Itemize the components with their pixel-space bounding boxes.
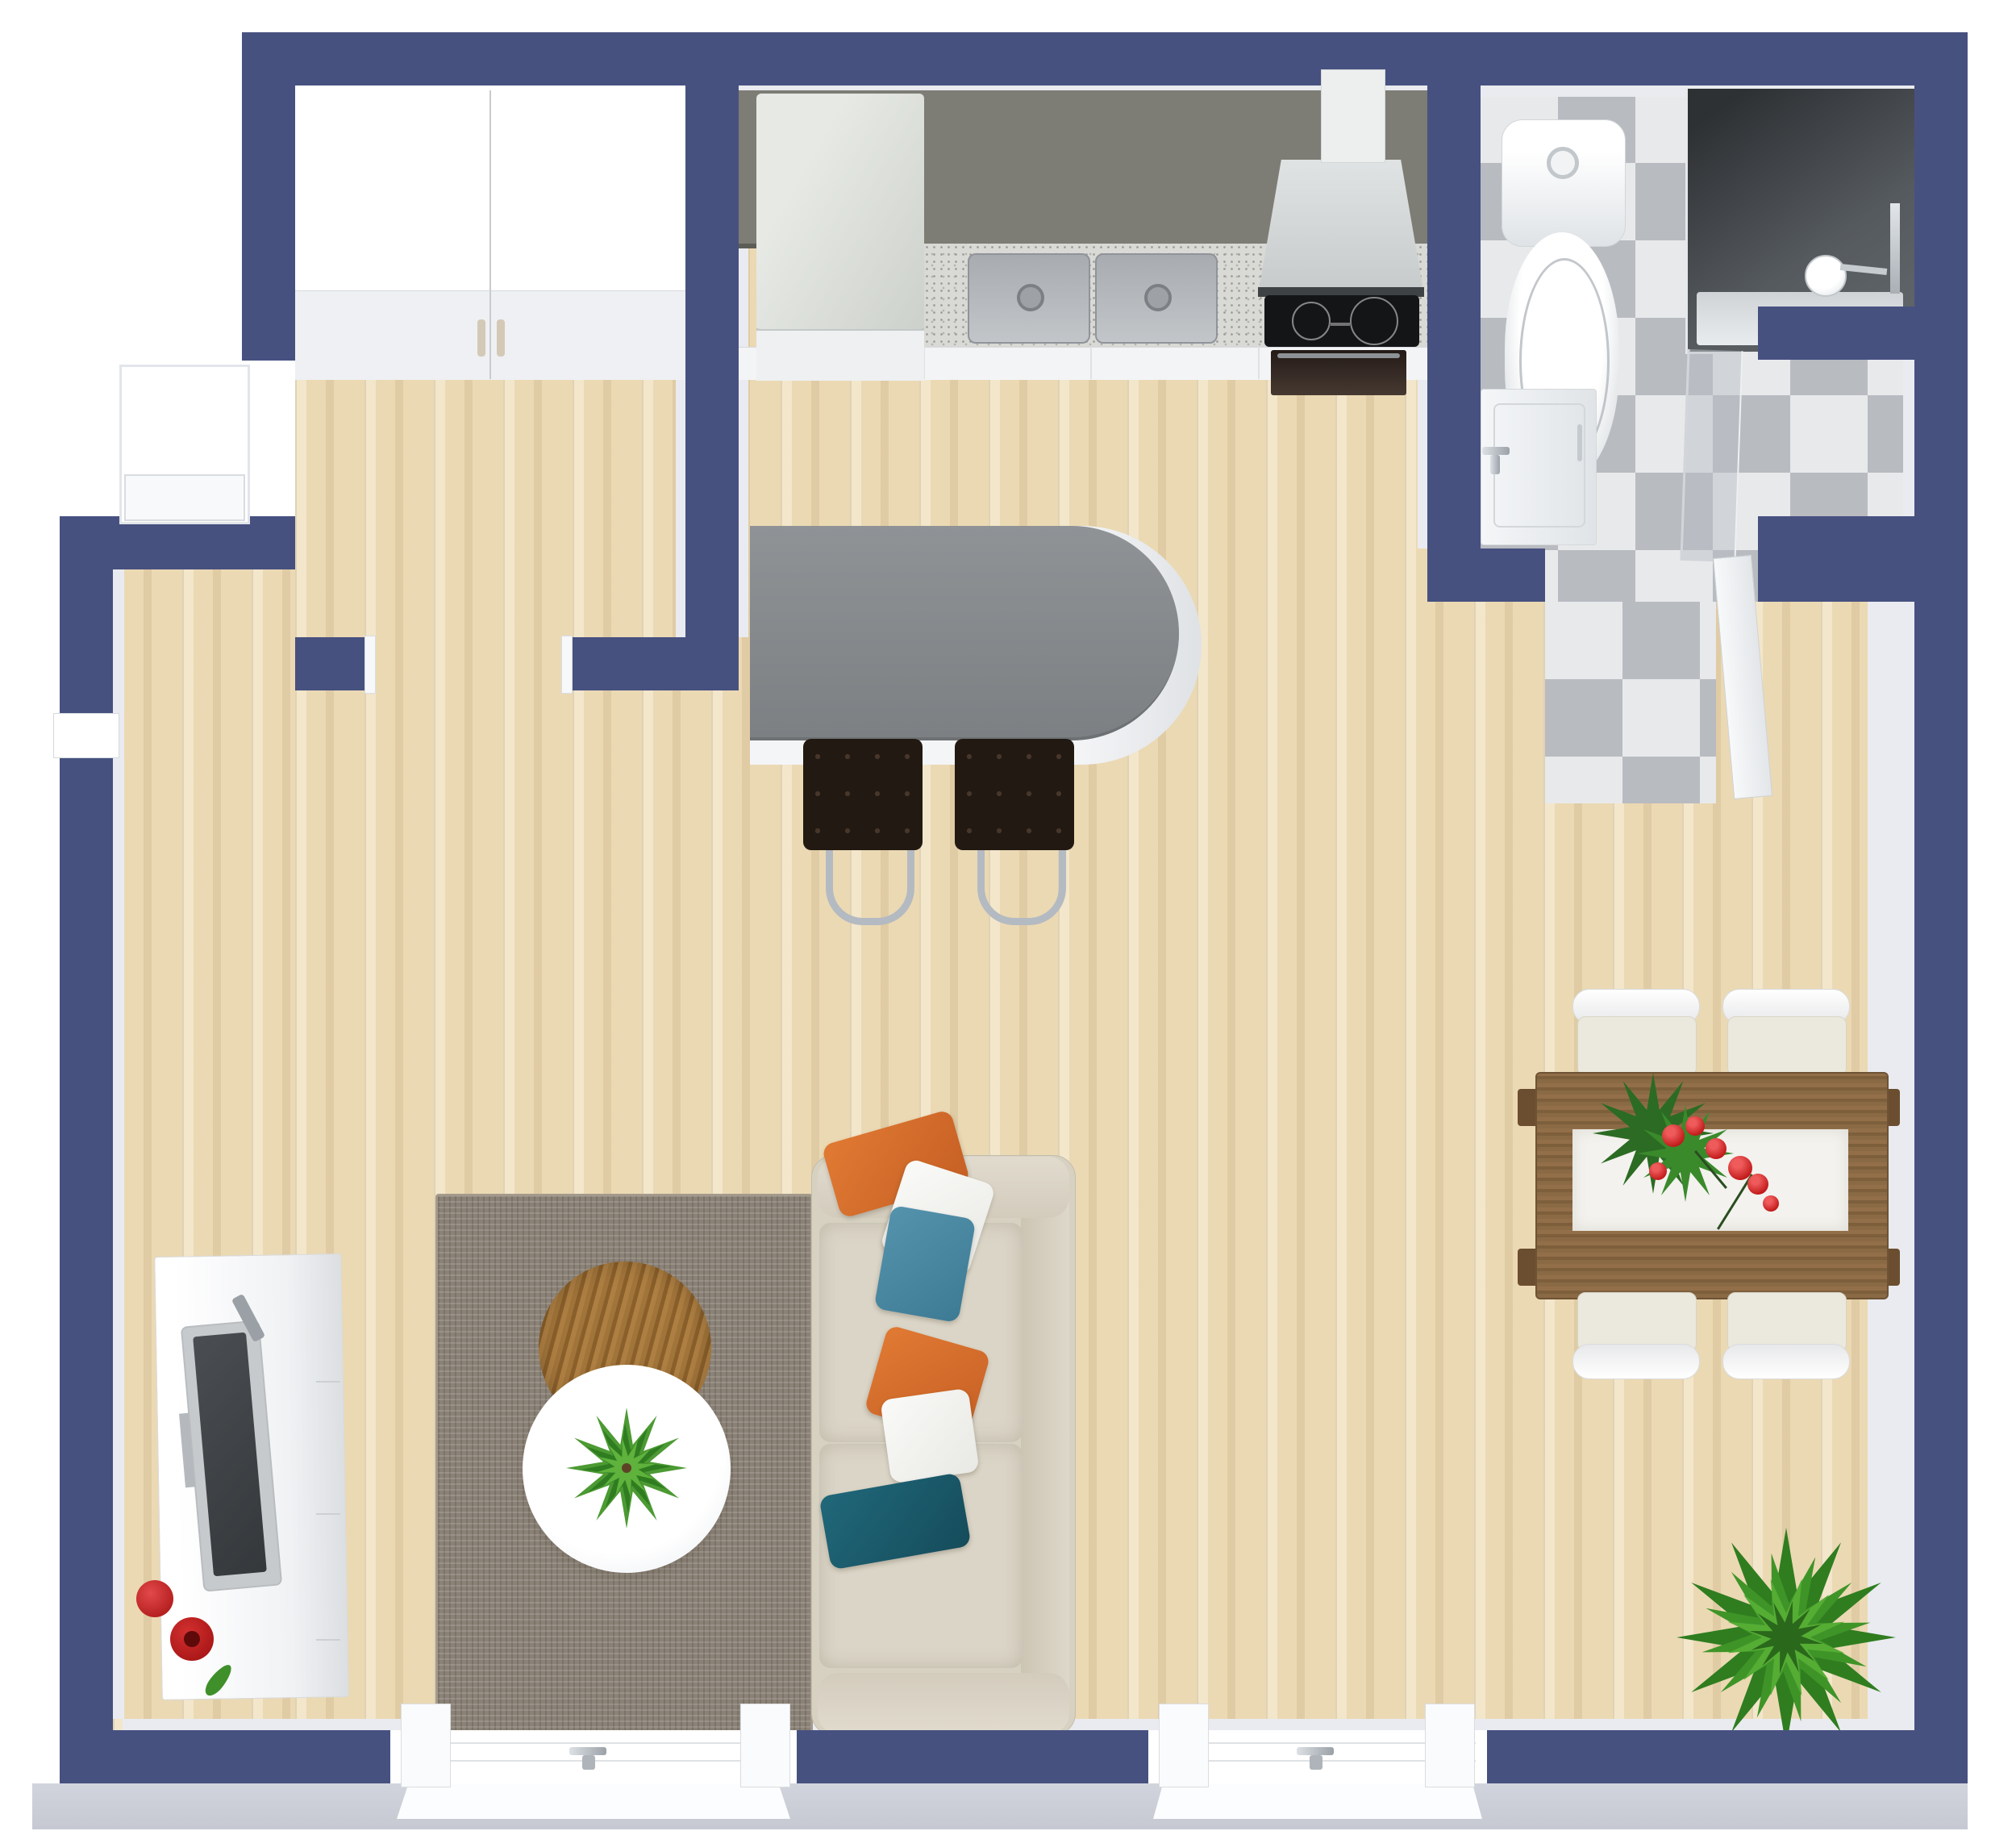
bar-stool-left-legs: [826, 850, 914, 925]
island-top: [750, 526, 1179, 740]
wall-bathroom-left: [1427, 86, 1481, 548]
dining-chair-bottom-left-back: [1572, 1344, 1700, 1379]
window-jamb: [740, 1704, 790, 1787]
wall-kitchen-partition: [685, 86, 739, 637]
window-south-right-ext: [1153, 1783, 1482, 1819]
red-flower: [1728, 1156, 1752, 1180]
burner-right: [1350, 297, 1398, 345]
red-vase-opening: [184, 1631, 200, 1647]
bar-stool-right-legs: [977, 850, 1066, 925]
range-hood: [1258, 160, 1424, 295]
dining-chair-bottom-left-cushion: [1577, 1292, 1697, 1352]
pillow-blue: [874, 1205, 977, 1323]
faucet-spout: [1490, 455, 1500, 474]
red-flower: [1763, 1195, 1779, 1212]
wall-entry-partition-left: [295, 637, 371, 690]
refrigerator: [756, 94, 924, 332]
entry-alcove-sill: [124, 474, 245, 521]
window-handle: [569, 1747, 606, 1755]
sink-drain-right: [1144, 284, 1172, 311]
table-plant-center: [622, 1463, 631, 1473]
wall-bathroom-step: [1427, 548, 1545, 602]
red-flower: [1649, 1162, 1667, 1180]
sideboard-seam: [316, 1381, 340, 1383]
window-handle-nub: [582, 1755, 595, 1770]
window-sill-line: [403, 1742, 784, 1744]
red-flower: [1706, 1138, 1727, 1159]
dining-chair-top-right-cushion: [1727, 1016, 1847, 1076]
vanity-basin: [1493, 403, 1585, 528]
window-jamb: [401, 1704, 451, 1787]
cooktop-label: [1331, 323, 1350, 326]
window-south-left-ext: [397, 1783, 790, 1819]
ground-apron: [32, 1783, 1968, 1829]
red-flower: [1747, 1174, 1768, 1195]
shower-head: [1805, 255, 1847, 297]
red-flower: [1685, 1116, 1705, 1136]
refrigerator-doors: [756, 329, 924, 381]
entry-door-jamb: [364, 636, 376, 694]
hood-duct: [1321, 69, 1385, 163]
wall-entry-partition-right: [564, 637, 739, 690]
sofa-armrest-bottom: [818, 1673, 1069, 1734]
sideboard-seam: [316, 1639, 340, 1641]
wall-left-upper: [242, 86, 295, 361]
faucet: [1482, 447, 1510, 455]
wall-top: [242, 32, 1968, 86]
wall-bottom: [60, 1730, 1968, 1783]
oven-handle: [1277, 353, 1400, 358]
entry-door-jamb: [561, 636, 573, 694]
window-handle: [1297, 1747, 1334, 1755]
wall-right: [1914, 86, 1968, 1730]
cabinet-seam-3: [1258, 347, 1260, 379]
wardrobe-handle-left: [477, 319, 485, 357]
cabinet-seam-2: [1090, 347, 1092, 379]
shower-column: [1890, 203, 1900, 294]
sideboard-seam: [316, 1513, 340, 1515]
dining-chair-bottom-right-back: [1722, 1344, 1850, 1379]
bar-stool-left: [803, 739, 923, 850]
shower-glass-panel: [1680, 349, 1743, 562]
toilet-flush-button: [1547, 147, 1579, 179]
wall-bathroom-lower-stub: [1758, 516, 1914, 602]
floorplan: [0, 0, 2016, 1831]
red-bowl: [136, 1580, 173, 1617]
wardrobe-handle-right: [497, 319, 505, 357]
wall-bathroom-upper-stub: [1758, 307, 1914, 360]
wardrobe-door-seam: [489, 90, 491, 379]
west-window: [53, 713, 119, 758]
window-jamb: [1425, 1704, 1475, 1787]
dining-chair-bottom-right-cushion: [1727, 1292, 1847, 1352]
dining-chair-top-left-cushion: [1577, 1016, 1697, 1076]
burner-left: [1292, 302, 1331, 340]
sofa-backrest: [1021, 1168, 1069, 1721]
toilet-tank: [1502, 119, 1626, 247]
red-flower: [1662, 1124, 1685, 1147]
bar-stool-right: [955, 739, 1074, 850]
window-jamb: [1159, 1704, 1209, 1787]
vanity-handle: [1577, 424, 1582, 461]
sink-drain-left: [1017, 284, 1044, 311]
bathroom-vestibule-tile: [1545, 602, 1716, 803]
window-handle-nub: [1310, 1755, 1322, 1770]
pillow-white-2: [880, 1388, 979, 1483]
